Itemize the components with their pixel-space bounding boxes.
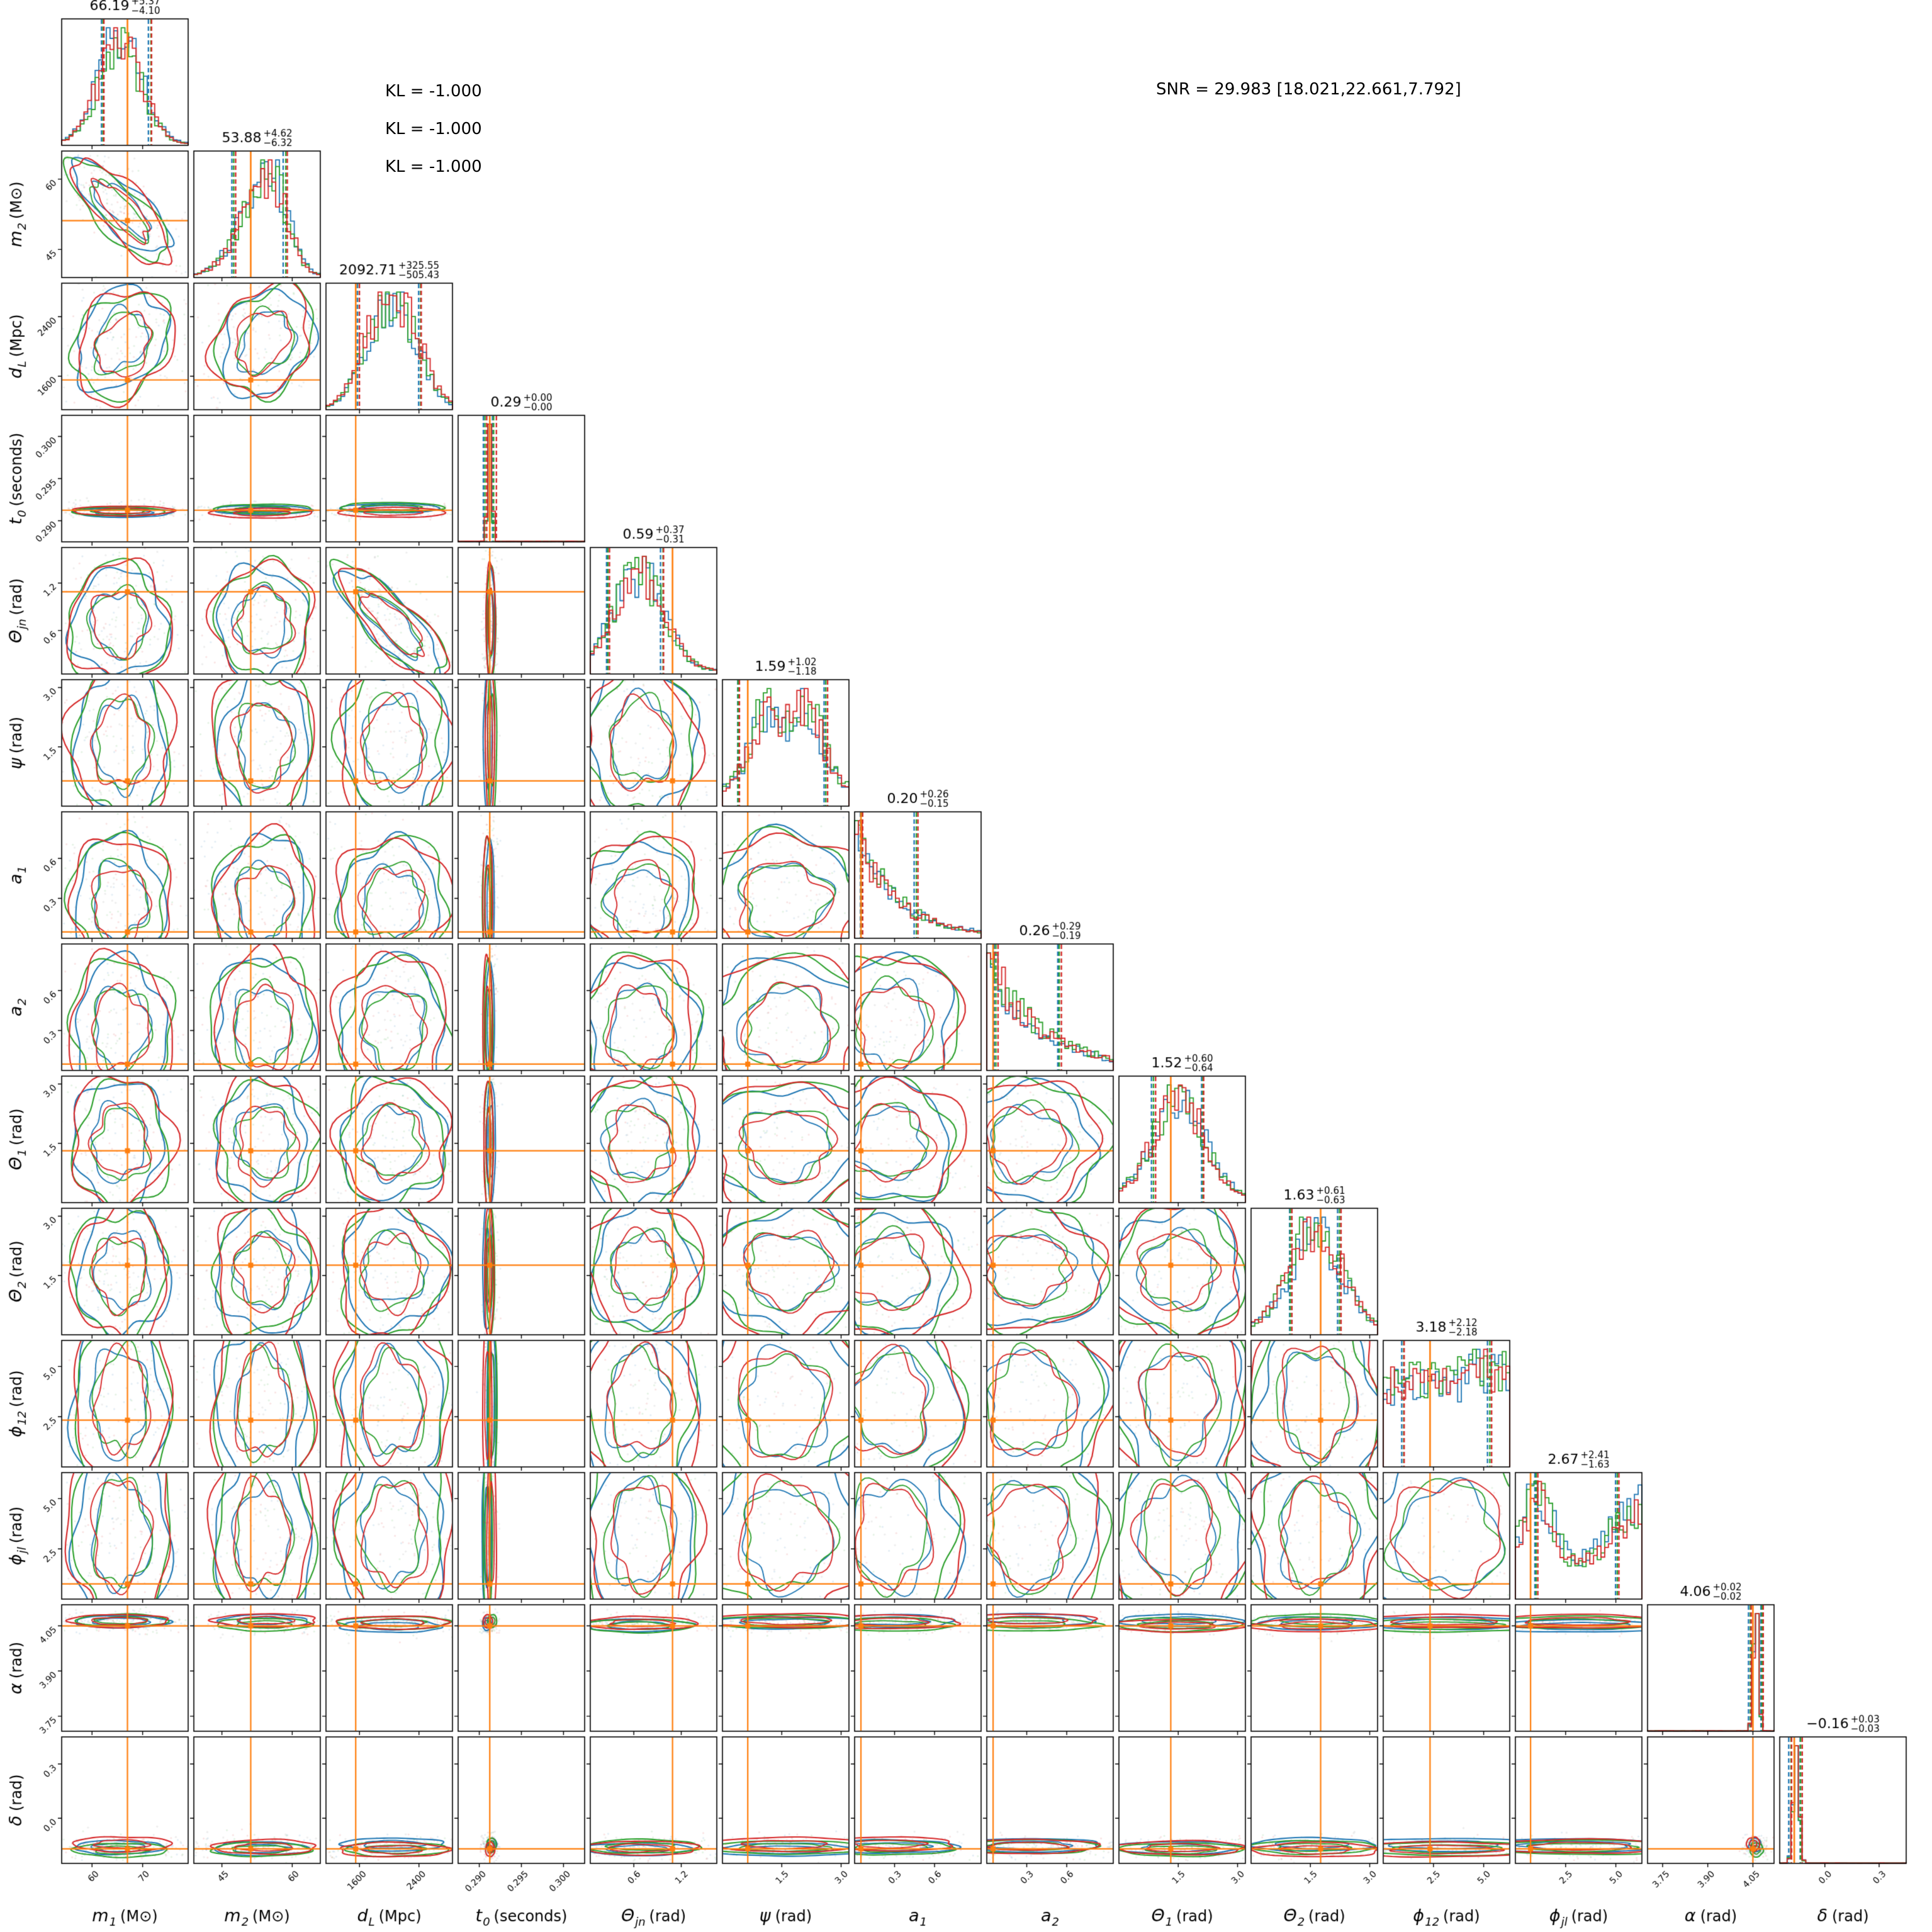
- kl-annotation-2: KL = -1.000: [385, 120, 482, 138]
- corner-plot-figure: KL = -1.000 KL = -1.000 KL = -1.000 SNR …: [0, 0, 1932, 1932]
- kl-annotation-3: KL = -1.000: [385, 157, 482, 176]
- corner-plot-canvas: [0, 0, 1932, 1932]
- kl-annotation-1: KL = -1.000: [385, 82, 482, 101]
- snr-annotation: SNR = 29.983 [18.021,22.661,7.792]: [1156, 80, 1461, 99]
